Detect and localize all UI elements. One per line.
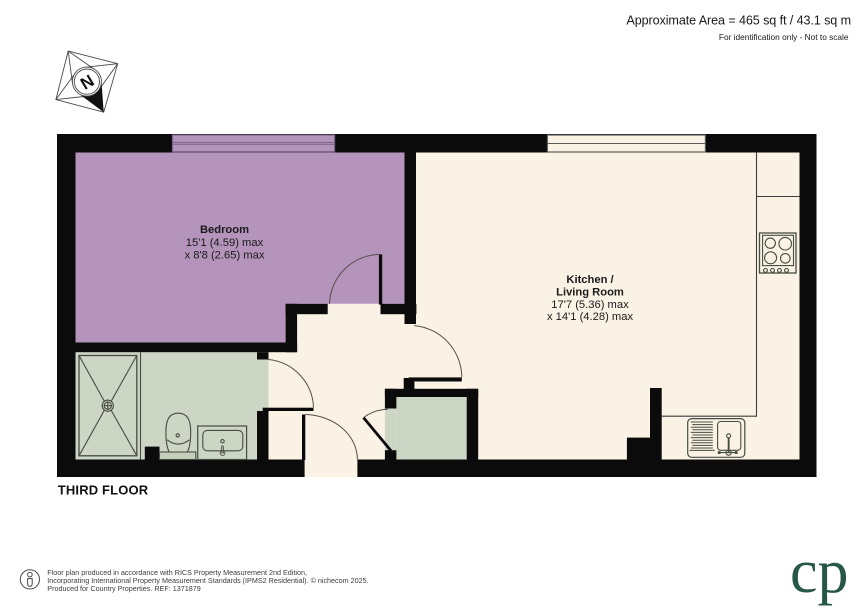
- svg-text:Bedroom: Bedroom: [200, 224, 249, 236]
- svg-text:x 8'8 (2.65) max: x 8'8 (2.65) max: [185, 250, 265, 262]
- svg-text:Kitchen /: Kitchen /: [566, 274, 613, 286]
- svg-text:x 14'1 (4.28) max: x 14'1 (4.28) max: [547, 311, 633, 323]
- svg-text:Approximate Area = 465 sq ft /: Approximate Area = 465 sq ft / 43.1 sq m: [626, 14, 851, 28]
- svg-text:15'1 (4.59) max: 15'1 (4.59) max: [186, 237, 264, 249]
- svg-text:Living Room: Living Room: [556, 287, 624, 299]
- svg-text:THIRD FLOOR: THIRD FLOOR: [58, 482, 149, 497]
- svg-text:Produced for Country Propertie: Produced for Country Properties. REF: 13…: [47, 584, 200, 593]
- svg-text:For identification only - Not: For identification only - Not to scale: [719, 32, 849, 42]
- svg-text:17'7 (5.36) max: 17'7 (5.36) max: [551, 299, 629, 311]
- svg-text:cp: cp: [790, 538, 849, 606]
